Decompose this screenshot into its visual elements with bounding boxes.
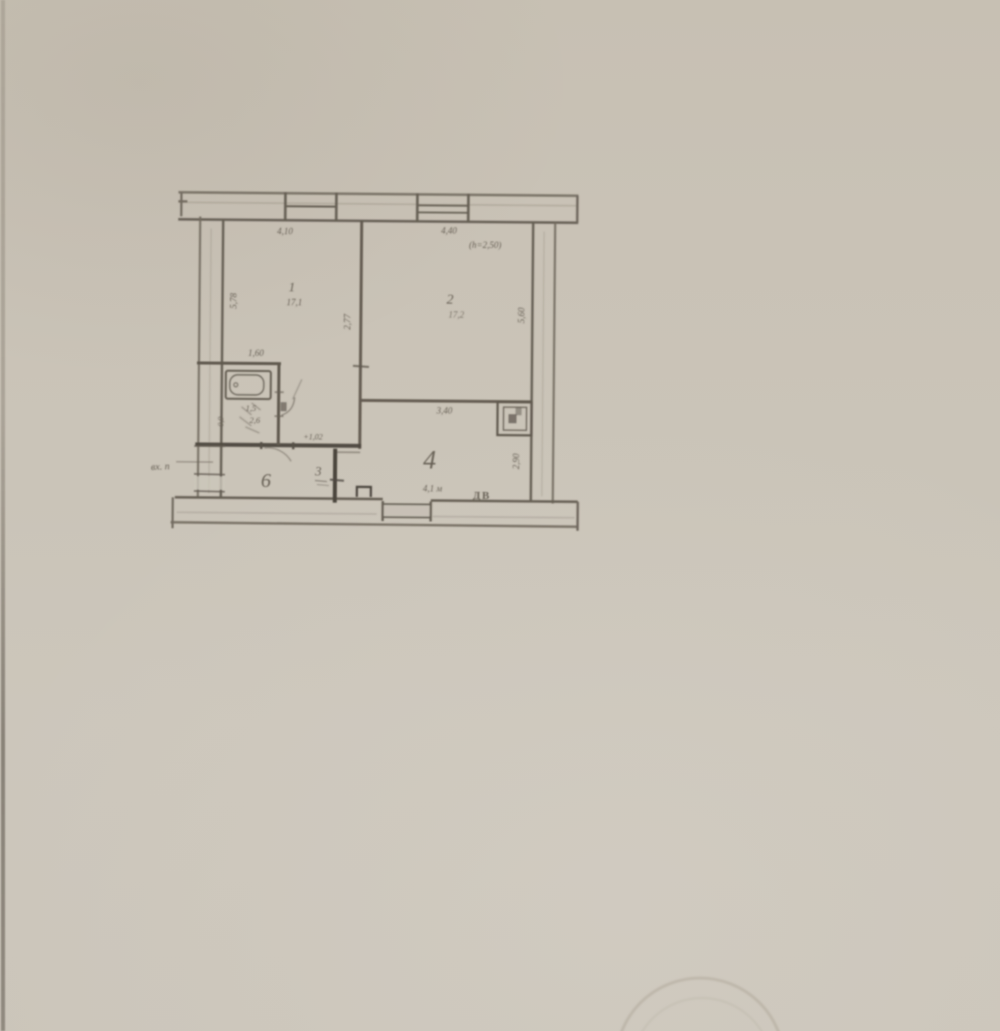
svg-text:1: 1 (289, 279, 296, 294)
svg-text:2,6: 2,6 (249, 415, 260, 425)
svg-text:вх. п: вх. п (151, 461, 170, 473)
svg-text:(h=2,50): (h=2,50) (469, 240, 501, 250)
svg-text:1,60: 1,60 (248, 348, 264, 358)
svg-text:ДВ: ДВ (473, 490, 491, 502)
svg-text:17,2: 17,2 (448, 310, 464, 320)
svg-text:4,1 м: 4,1 м (423, 483, 443, 493)
svg-text:5,60: 5,60 (516, 307, 526, 323)
svg-text:0,9: 0,9 (216, 417, 225, 427)
svg-text:+1,02: +1,02 (303, 432, 322, 441)
svg-text:2: 2 (446, 293, 453, 308)
svg-text:4: 4 (423, 445, 436, 474)
svg-text:4,10: 4,10 (277, 226, 293, 236)
svg-text:2,90: 2,90 (511, 453, 521, 469)
svg-text:5,78: 5,78 (228, 292, 238, 308)
svg-text:3: 3 (314, 463, 322, 478)
svg-text:3,40: 3,40 (436, 406, 453, 416)
svg-text:2,77: 2,77 (342, 313, 352, 329)
svg-text:4,40: 4,40 (441, 226, 457, 236)
svg-text:6: 6 (261, 470, 271, 492)
svg-text:17,1: 17,1 (286, 297, 302, 307)
